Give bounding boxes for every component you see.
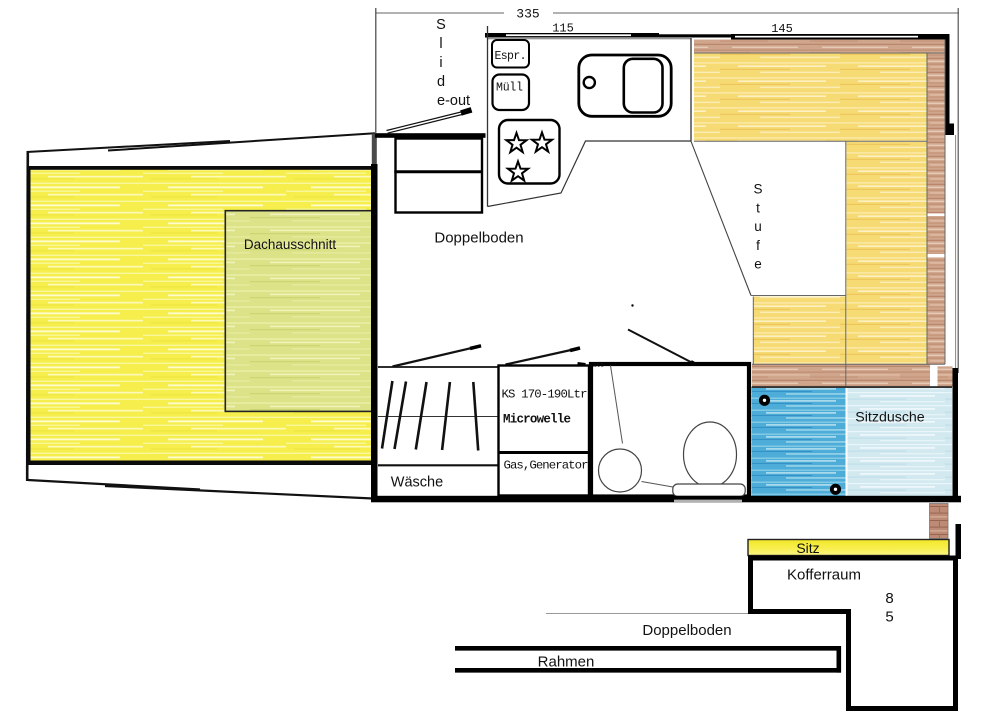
svg-text:Müll: Müll (496, 82, 523, 95)
svg-text:e: e (754, 257, 762, 272)
svg-text:d: d (437, 74, 445, 90)
svg-text:Sitzdusche: Sitzdusche (855, 410, 925, 426)
svg-text:335: 335 (516, 7, 539, 22)
svg-text:Sitz: Sitz (796, 540, 819, 556)
svg-text:S: S (436, 17, 446, 33)
svg-text:Rahmen: Rahmen (538, 654, 595, 671)
svg-text:Dachausschnitt: Dachausschnitt (244, 237, 337, 252)
svg-text:S: S (753, 182, 762, 197)
svg-text:Microwelle: Microwelle (503, 413, 571, 427)
svg-text:i: i (439, 55, 442, 71)
svg-text:Wäsche: Wäsche (391, 475, 443, 491)
svg-text:f: f (756, 238, 760, 253)
svg-text:att: att (593, 362, 604, 369)
svg-text:145: 145 (771, 22, 793, 36)
svg-text:Espr.: Espr. (495, 50, 527, 63)
svg-text:Doppelboden: Doppelboden (434, 230, 523, 247)
svg-text:Doppelboden: Doppelboden (642, 622, 731, 639)
svg-text:t: t (756, 201, 760, 216)
svg-text:Kofferraum: Kofferraum (787, 567, 861, 584)
svg-text:l: l (439, 36, 442, 52)
svg-text:u: u (754, 219, 762, 234)
svg-text:8: 8 (885, 590, 893, 607)
svg-text:Gas,Generator: Gas,Generator (504, 459, 589, 473)
svg-text:5: 5 (885, 609, 893, 626)
svg-text:KS 170-190Ltr: KS 170-190Ltr (502, 388, 588, 402)
svg-text:e-out: e-out (437, 93, 470, 109)
